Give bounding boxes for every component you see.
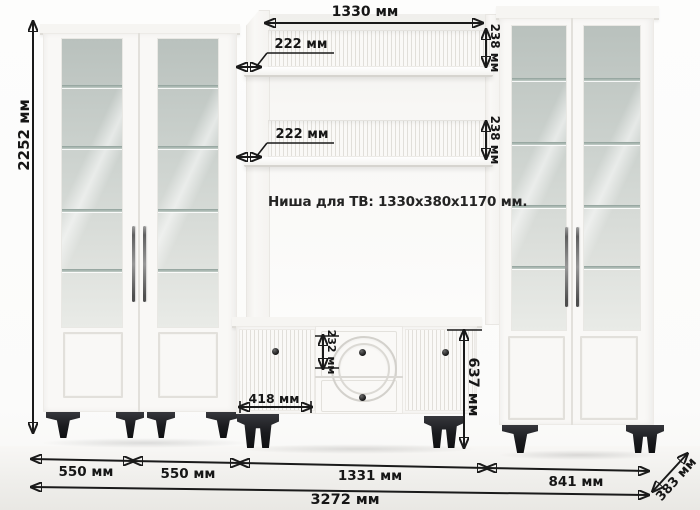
dim-left-cabinet-2-label: 550 мм (151, 465, 225, 483)
dim-shelf-top-height-label: 238 мм (486, 11, 504, 85)
furniture-dimension-diagram: Ниша для ТВ: 1330x380x1170 мм. (0, 0, 700, 510)
dim-total-height-label: 2252 мм (15, 98, 33, 172)
dim-left-cabinet-1-arrow (32, 459, 133, 461)
dim-right-cabinets-label: 841 мм (539, 473, 613, 491)
dim-shelf-top-depth-leader (256, 53, 334, 67)
dim-right-cabinets-arrow (487, 468, 648, 471)
dim-shelf-top-depth-label: 222 мм (264, 36, 338, 54)
dim-stand-height-label: 637 мм (464, 350, 482, 424)
dimension-lines (0, 0, 700, 510)
dim-niche-width-label: 1330 мм (328, 3, 402, 21)
dim-drawer-height-label: 232 мм (322, 315, 340, 389)
dim-shelf-bottom-depth-label: 222 мм (265, 126, 339, 144)
dim-total-width-label: 3272 мм (308, 491, 382, 509)
dim-shelf-bottom-height-label: 238 мм (486, 103, 504, 177)
dim-left-cabinet-1-label: 550 мм (49, 463, 123, 481)
dim-stand-door-width-label: 418 мм (237, 390, 311, 408)
dim-shelf-bottom-depth-leader (256, 143, 334, 157)
tv-niche-note: Ниша для ТВ: 1330x380x1170 мм. (268, 194, 527, 210)
dim-left-cabinet-2-arrow (133, 461, 240, 463)
dim-stand-section-label: 1331 мм (333, 467, 407, 485)
